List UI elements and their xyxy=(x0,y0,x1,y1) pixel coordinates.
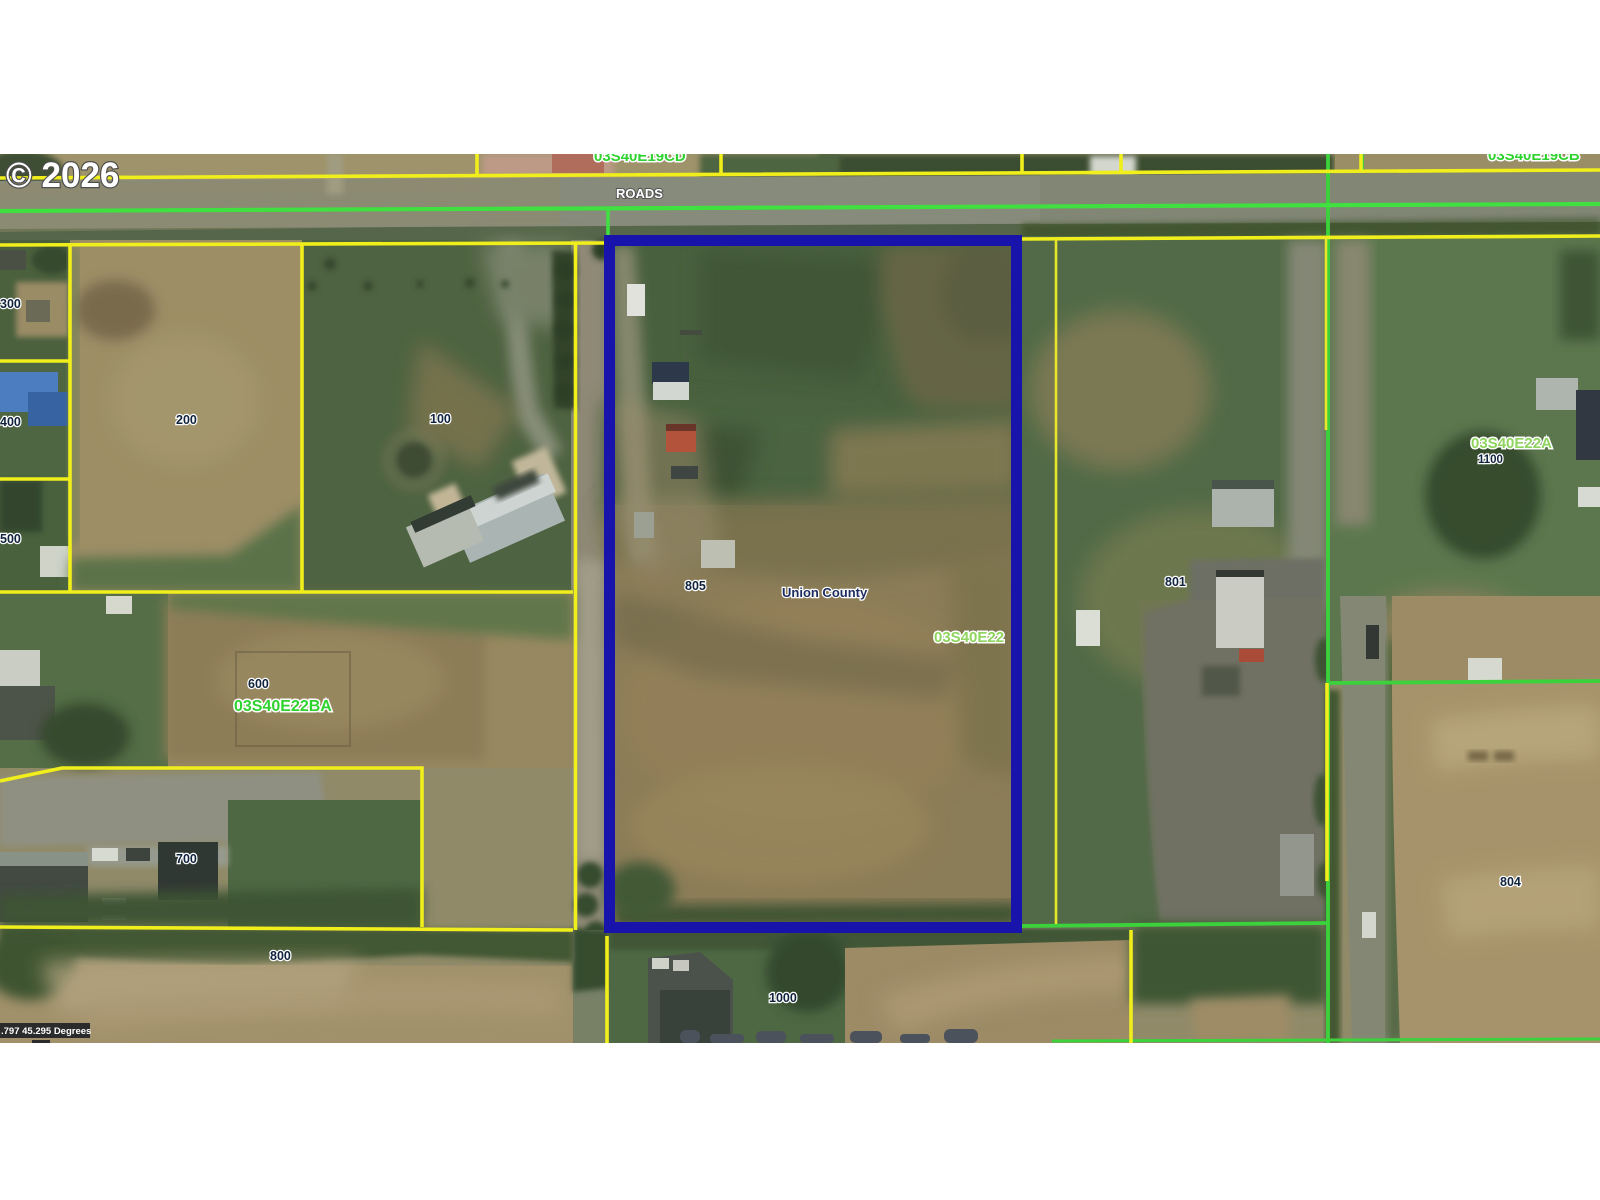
svg-text:400: 400 xyxy=(0,415,21,429)
svg-text:© 2026: © 2026 xyxy=(6,156,119,195)
svg-text:03S40E22A: 03S40E22A xyxy=(1471,435,1552,452)
svg-text:100: 100 xyxy=(430,412,451,426)
svg-text:1100: 1100 xyxy=(1478,454,1503,466)
svg-text:801: 801 xyxy=(1165,575,1186,589)
svg-text:200: 200 xyxy=(176,413,197,427)
svg-text:500: 500 xyxy=(0,532,21,546)
svg-text:805: 805 xyxy=(685,579,706,593)
svg-text:600: 600 xyxy=(248,677,269,691)
svg-text:1000: 1000 xyxy=(769,991,797,1005)
svg-text:300: 300 xyxy=(0,297,21,311)
svg-text:03S40E22BA: 03S40E22BA xyxy=(234,698,332,715)
svg-text:800: 800 xyxy=(270,949,291,963)
svg-text:.797 45.295 Degrees: .797 45.295 Degrees xyxy=(1,1026,91,1037)
svg-text:03S40E22: 03S40E22 xyxy=(934,629,1004,646)
svg-text:700: 700 xyxy=(176,852,197,866)
svg-text:ROADS: ROADS xyxy=(616,186,663,201)
svg-text:804: 804 xyxy=(1500,875,1521,889)
svg-text:Union County: Union County xyxy=(782,585,868,600)
